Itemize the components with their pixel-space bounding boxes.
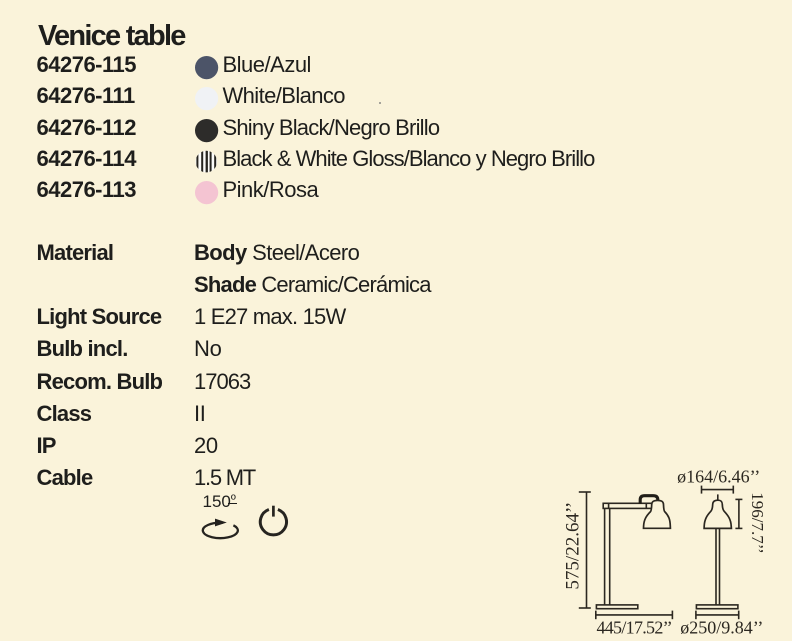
svg-text:ø164/6.46’’: ø164/6.46’’ (677, 467, 760, 487)
svg-text:ø250/9.84’’: ø250/9.84’’ (680, 617, 763, 637)
svg-text:575/22.64’’: 575/22.64’’ (563, 502, 584, 590)
svg-text:445/17.52’’: 445/17.52’’ (596, 617, 671, 637)
svg-text:196/7.7’’: 196/7.7’’ (748, 492, 767, 554)
